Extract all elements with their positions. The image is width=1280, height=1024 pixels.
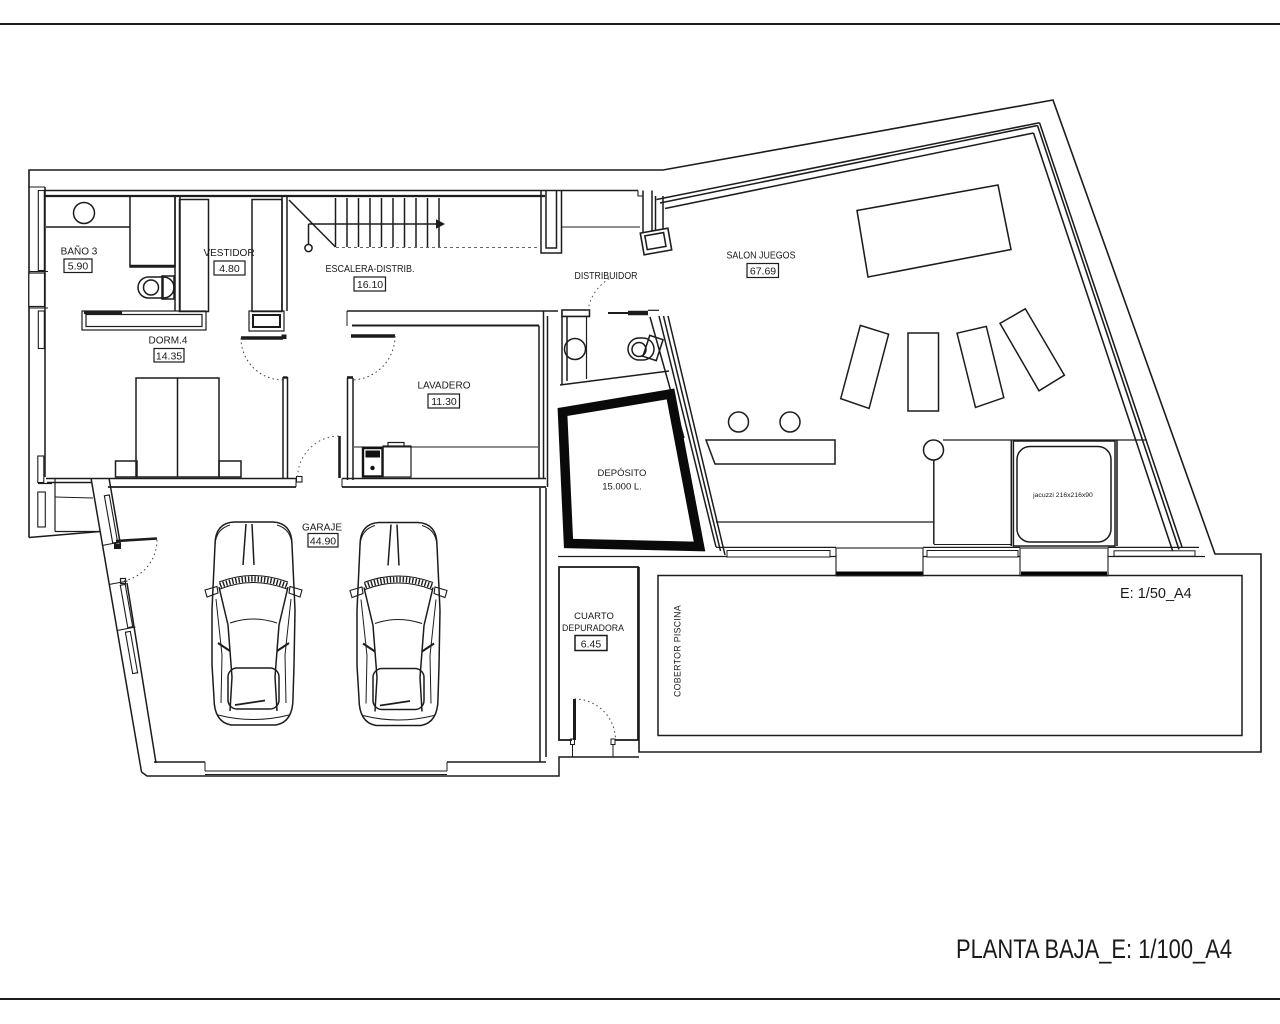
svg-text:16.10: 16.10 bbox=[357, 279, 383, 291]
svg-text:15.000 L.: 15.000 L. bbox=[602, 482, 642, 493]
svg-text:E: 1/50_A4: E: 1/50_A4 bbox=[1120, 586, 1192, 602]
svg-text:COBERTOR PISCINA: COBERTOR PISCINA bbox=[673, 605, 683, 697]
svg-text:DISTRIBUIDOR: DISTRIBUIDOR bbox=[575, 271, 638, 282]
svg-text:ESCALERA-DISTRIB.: ESCALERA-DISTRIB. bbox=[326, 264, 415, 275]
svg-text:LAVADERO: LAVADERO bbox=[418, 381, 471, 392]
svg-text:6.45: 6.45 bbox=[581, 639, 602, 651]
svg-text:DEPÓSITO: DEPÓSITO bbox=[598, 468, 647, 479]
svg-text:67.69: 67.69 bbox=[750, 266, 776, 278]
svg-text:4.80: 4.80 bbox=[219, 263, 240, 275]
svg-text:SALON JUEGOS: SALON JUEGOS bbox=[727, 251, 796, 262]
svg-text:DEPURADORA: DEPURADORA bbox=[562, 623, 625, 634]
svg-text:VESTIDOR: VESTIDOR bbox=[203, 248, 254, 259]
svg-text:jacuzzi 216x216x90: jacuzzi 216x216x90 bbox=[1032, 492, 1093, 499]
svg-text:CUARTO: CUARTO bbox=[574, 611, 614, 622]
svg-text:44.90: 44.90 bbox=[310, 536, 336, 548]
svg-text:GARAJE: GARAJE bbox=[302, 523, 342, 534]
svg-text:PLANTA BAJA_E: 1/100_A4: PLANTA BAJA_E: 1/100_A4 bbox=[956, 934, 1232, 964]
svg-text:BAÑO 3: BAÑO 3 bbox=[61, 245, 98, 258]
svg-text:5.90: 5.90 bbox=[68, 261, 89, 273]
svg-text:11.30: 11.30 bbox=[431, 396, 457, 408]
svg-text:14.35: 14.35 bbox=[156, 351, 182, 363]
svg-text:DORM.4: DORM.4 bbox=[149, 336, 188, 347]
